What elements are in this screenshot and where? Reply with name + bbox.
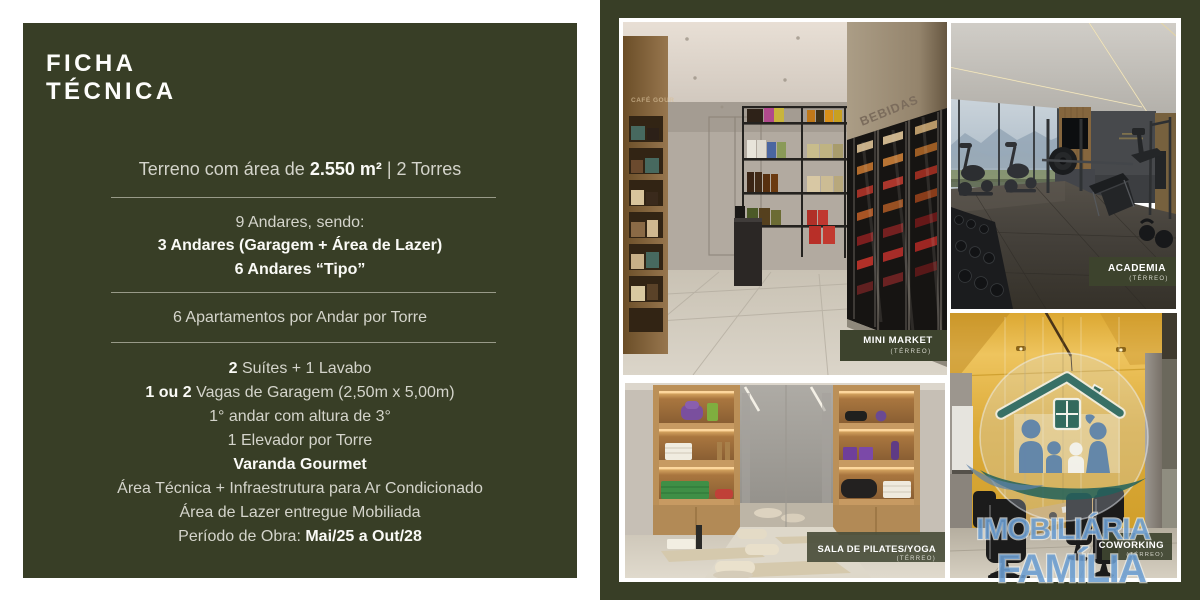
svg-text:CAFÉ GOUR: CAFÉ GOUR (631, 95, 675, 104)
svg-text:SALA DE PILATES/YOGA: SALA DE PILATES/YOGA (817, 543, 936, 554)
svg-text:ACADEMIA: ACADEMIA (1108, 263, 1166, 274)
svg-text:IMOBILIÁRIA: IMOBILIÁRIA (976, 512, 1150, 546)
svg-text:MINI MARKET: MINI MARKET (863, 335, 932, 346)
svg-text:(TÉRREO): (TÉRREO) (890, 348, 931, 355)
svg-text:(TÉRREO): (TÉRREO) (897, 555, 936, 562)
svg-text:FAMÍLIA: FAMÍLIA (997, 546, 1146, 591)
svg-text:(TÉRREO): (TÉRREO) (1129, 275, 1168, 282)
